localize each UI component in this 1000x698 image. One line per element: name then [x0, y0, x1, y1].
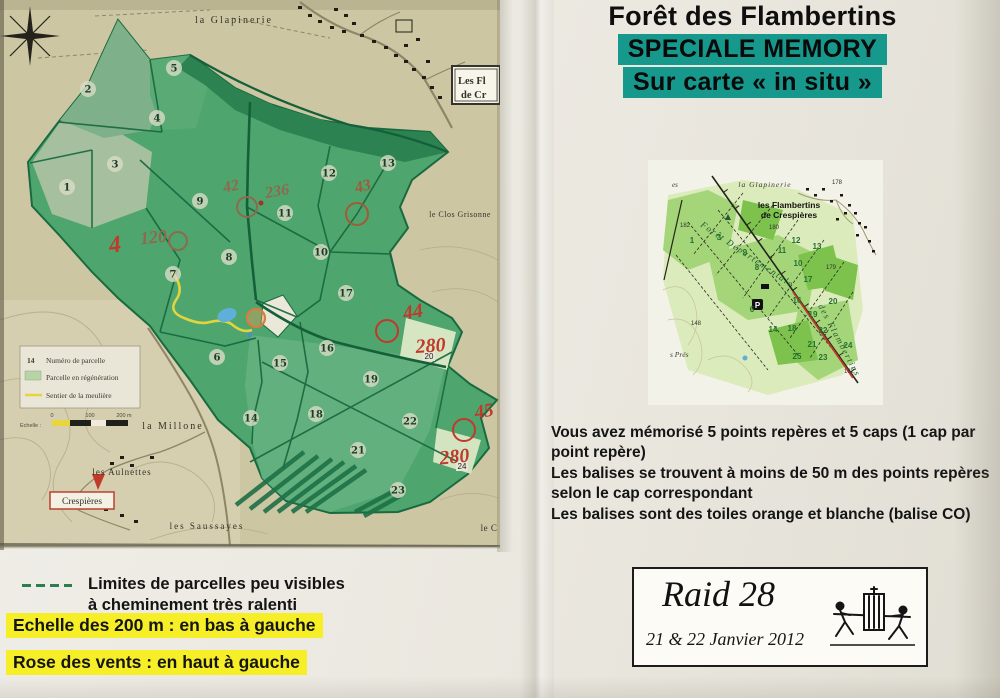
- small-map-parcel-number: 11: [778, 246, 787, 255]
- map-paper-topedge: [0, 0, 500, 10]
- parcel-number-text: 12: [322, 169, 336, 180]
- svg-text:P: P: [755, 301, 761, 310]
- scale-100: 100: [85, 413, 94, 419]
- parcel-number: 13: [380, 155, 396, 171]
- scale-0: 0: [50, 413, 53, 419]
- parcel-number: 1: [59, 179, 75, 195]
- echelle-note: Echelle des 200 m : en bas à gauche: [6, 613, 323, 638]
- rose-note: Rose des vents : en haut à gauche: [6, 650, 307, 675]
- parcel-number: 12: [321, 165, 337, 181]
- parcel-number-text: 15: [273, 359, 287, 370]
- instruction-1: Vous avez mémorisé 5 points repères et 5…: [551, 423, 1000, 464]
- raid-date: 21 & 22 Janvier 2012: [646, 629, 804, 650]
- small-map-elevation: 180: [769, 225, 780, 231]
- parcel-number: 21: [350, 442, 366, 458]
- instruction-2: Les balises se trouvent à moins de 50 m …: [551, 464, 1000, 505]
- small-map-parcel-number: 1: [690, 236, 695, 245]
- small-map-elevation: 178: [832, 180, 843, 186]
- right-edge-shade: [954, 0, 1000, 698]
- parcel-number-text: 11: [278, 209, 292, 220]
- parcel-number-text: 19: [364, 375, 378, 386]
- handwritten-number: 120: [139, 226, 168, 249]
- parcel-number-text: 14: [244, 414, 258, 425]
- parcel-number: 11: [277, 205, 293, 221]
- crespieres-box: Crespières: [50, 492, 114, 509]
- small-map-label: les Flambertins: [758, 200, 821, 210]
- small-map-svg: P esla Glapinerieles Flambertinsde Cresp…: [648, 160, 883, 405]
- parcel-number: 18: [308, 406, 324, 422]
- small-map-parcel-number: 22: [819, 326, 828, 335]
- place-label: la Glapinerie: [195, 15, 273, 26]
- parcel-number-text: 17: [339, 289, 353, 300]
- legend-row2: Parcelle en régénération: [46, 373, 119, 382]
- small-map-parcel-number: 19: [809, 310, 818, 319]
- limites-line1: Limites de parcelles peu visibles: [88, 575, 345, 593]
- legend-box: 14 Numéro de parcelle Parcelle en régéné…: [20, 346, 140, 408]
- parcel-number-text: 7: [170, 270, 177, 281]
- small-map-parcel-number: 17: [804, 275, 813, 284]
- small-map-parcel-number: 20: [829, 297, 838, 306]
- parcel-number: 23: [390, 482, 406, 498]
- parcel-number-text: 1: [64, 183, 71, 194]
- raid-box: Raid 28 21 & 22 Janvier 2012: [632, 567, 928, 667]
- parcel-number: 8: [221, 249, 237, 265]
- junction-dot: [259, 201, 264, 206]
- subtitle-memory: SPECIALE MEMORY: [618, 34, 888, 65]
- parcel-number-text: 2: [85, 85, 92, 96]
- parcel-number: 5: [166, 60, 182, 76]
- photo-bottom-shadow: [0, 545, 500, 549]
- place-label: le Clos Grisonne: [429, 210, 491, 219]
- parcel-number: 7: [165, 266, 181, 282]
- photo-right-shadow: [497, 0, 513, 552]
- flambertins-box-l1: Les Fl: [458, 76, 486, 87]
- parcel-number: 19: [363, 371, 379, 387]
- small-map-parcel-number: 16: [793, 296, 802, 305]
- big-map-svg: Crespières Les Fl de Cr 14 Numéro de par…: [0, 0, 500, 547]
- handwritten-number: 280: [414, 334, 446, 358]
- place-label: les Saussayes: [170, 521, 245, 531]
- bottom-edge-shade: [0, 676, 1000, 698]
- legend-row3: Sentier de la meulière: [46, 391, 112, 400]
- small-map-elevation: 148: [691, 321, 702, 327]
- small-map-parcel-number: 14: [769, 325, 778, 334]
- place-label: les Aulnettes: [92, 467, 151, 477]
- small-map-parcel-number: 13: [813, 242, 822, 251]
- handwritten-number: 42: [220, 177, 240, 197]
- small-map: P esla Glapinerieles Flambertinsde Cresp…: [648, 160, 883, 405]
- parcel-number-text: 8: [226, 253, 233, 264]
- photo-left-edge: [0, 0, 4, 550]
- handwritten-number: 280: [437, 445, 470, 470]
- parcel-number: 10: [313, 244, 329, 260]
- parcel-number: 14: [243, 410, 259, 426]
- small-map-parcel-number: 6: [750, 305, 755, 314]
- dashed-line-icon: [22, 584, 72, 587]
- parcel-number-text: 9: [197, 197, 204, 208]
- parcel-number-text: 21: [351, 446, 365, 457]
- parcel-number: 2: [80, 81, 96, 97]
- scale-200: 200 m: [116, 413, 132, 419]
- parcel-number-text: 5: [171, 64, 178, 75]
- parcel-number: 6: [209, 349, 225, 365]
- small-map-parcel-number: 23: [819, 353, 828, 362]
- small-map-elevation: 182: [680, 223, 691, 229]
- small-map-parcel-number: 21: [808, 340, 817, 349]
- small-map-label: de Crespières: [761, 210, 817, 220]
- small-map-parcel-number: 9: [743, 248, 748, 257]
- handwritten-number: 44: [400, 300, 425, 325]
- instructions: Vous avez mémorisé 5 points repères et 5…: [551, 423, 1000, 525]
- small-map-elevation: 162: [844, 369, 855, 375]
- small-map-parcel-number: 10: [794, 259, 803, 268]
- page-fold-crease: [520, 0, 554, 698]
- scanned-page: Crespières Les Fl de Cr 14 Numéro de par…: [0, 0, 1000, 698]
- parcel-number: 22: [402, 413, 418, 429]
- small-map-elevation: 179: [826, 265, 837, 271]
- sign-marker: [761, 284, 769, 289]
- start-circle: [247, 309, 265, 327]
- parcel-number: 9: [192, 193, 208, 209]
- flambertins-box: Les Fl de Cr: [452, 66, 500, 104]
- limites-note: Limites de parcelles peu visibles à chem…: [88, 574, 345, 617]
- legend-num: 14: [27, 356, 35, 365]
- place-label: la Millone: [142, 421, 203, 432]
- small-map-parcel-number: 12: [792, 236, 801, 245]
- crespieres-label: Crespières: [62, 497, 102, 507]
- subtitle-carte: Sur carte « in situ »: [623, 67, 882, 98]
- limites-line2: à cheminement très ralenti: [88, 596, 297, 614]
- small-map-label: es: [672, 181, 678, 189]
- parcel-number: 15: [272, 355, 288, 371]
- small-map-parcel-number: 24: [844, 341, 853, 350]
- parcel-number-text: 16: [320, 344, 334, 355]
- sedan-chair-illustration: [828, 581, 918, 651]
- handwritten-number: 45: [472, 400, 496, 424]
- parcel-number-text: 6: [214, 353, 221, 364]
- small-map-parcel-number: 25: [793, 352, 802, 361]
- parcel-number-text: 4: [154, 114, 161, 125]
- legend-row1: Numéro de parcelle: [46, 356, 106, 365]
- small-map-label: s Prés: [670, 350, 689, 359]
- small-map-parcel-number: 3: [717, 233, 722, 242]
- instruction-3: Les balises sont des toiles orange et bl…: [551, 505, 1000, 525]
- page-title: Forêt des Flambertins: [570, 1, 935, 32]
- parcel-number-text: 18: [309, 410, 323, 421]
- parcel-number-text: 22: [403, 417, 417, 428]
- parcel-number: 17: [338, 285, 354, 301]
- place-label: le C: [481, 523, 498, 533]
- small-map-parcel-number: 8: [755, 263, 760, 272]
- subtitle-block: SPECIALE MEMORY Sur carte « in situ »: [575, 33, 930, 99]
- big-map-photo: Crespières Les Fl de Cr 14 Numéro de par…: [0, 0, 500, 547]
- flambertins-box-l2: de Cr: [461, 90, 487, 101]
- parcel-number: 3: [107, 156, 123, 172]
- scale-label: Echelle :: [20, 423, 42, 429]
- raid-title: Raid 28: [662, 573, 775, 615]
- parcel-number-text: 10: [314, 248, 328, 259]
- small-pond: [743, 356, 748, 361]
- parcel-number: 4: [149, 110, 165, 126]
- parcel-number-text: 13: [381, 159, 395, 170]
- parcel-number: 16: [319, 340, 335, 356]
- parcel-number-text: 3: [112, 160, 119, 171]
- small-map-label: la Glapinerie: [738, 180, 791, 189]
- small-map-parcel-number: 18: [788, 324, 797, 333]
- parcel-number-text: 23: [391, 486, 405, 497]
